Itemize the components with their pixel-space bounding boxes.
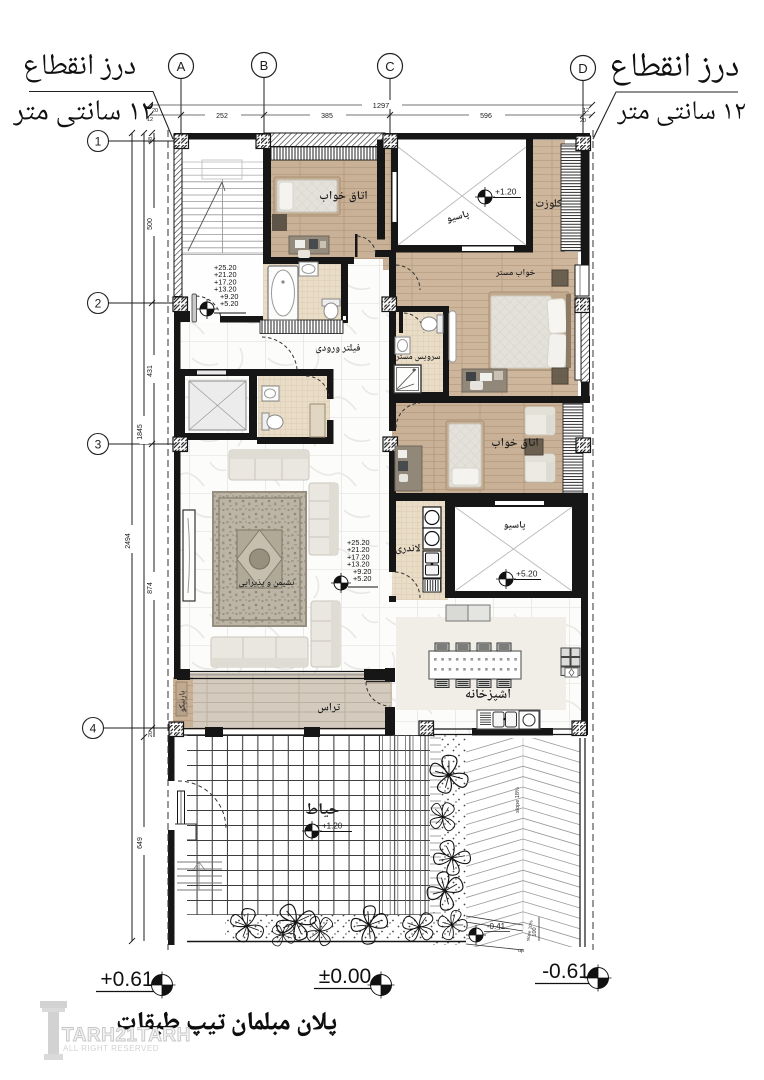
svg-text:100: 100: [532, 927, 538, 936]
svg-text:649: 649: [137, 837, 144, 849]
svg-text:C: C: [385, 59, 394, 74]
svg-text:874: 874: [147, 582, 154, 594]
svg-text:slope 18%: slope 18%: [515, 787, 521, 813]
svg-text:A: A: [177, 59, 186, 74]
svg-text:12: 12: [583, 108, 589, 114]
svg-text:20: 20: [152, 108, 158, 114]
svg-text:+5.20: +5.20: [220, 299, 238, 308]
svg-text:B: B: [260, 58, 269, 73]
svg-text:20: 20: [148, 731, 154, 737]
svg-text:-0.41: -0.41: [487, 922, 506, 931]
svg-text:2: 2: [95, 297, 102, 311]
svg-text:ALL RIGHT RESERVED: ALL RIGHT RESERVED: [63, 1044, 159, 1053]
svg-text:1845: 1845: [137, 424, 144, 440]
svg-text:500: 500: [147, 218, 154, 230]
svg-text:+1.20: +1.20: [322, 822, 343, 831]
svg-text:4: 4: [90, 722, 97, 736]
svg-text:1297: 1297: [373, 101, 390, 110]
svg-text:+0.61: +0.61: [100, 968, 153, 991]
svg-text:up: up: [518, 948, 524, 954]
svg-text:3: 3: [95, 438, 102, 452]
svg-text:+1.20: +1.20: [495, 187, 517, 197]
svg-text:+5.20: +5.20: [516, 569, 538, 579]
svg-text:385: 385: [321, 113, 333, 120]
svg-text:1: 1: [95, 135, 102, 149]
svg-text:596: 596: [480, 113, 492, 120]
svg-text:20: 20: [580, 118, 586, 124]
svg-text:252: 252: [216, 113, 228, 120]
svg-text:-0.61: -0.61: [542, 960, 590, 983]
svg-text:TARH21TARH: TARH21TARH: [62, 1025, 191, 1046]
svg-text:+5.20: +5.20: [353, 574, 371, 583]
svg-text:±0.00: ±0.00: [319, 965, 371, 988]
svg-text:431: 431: [147, 365, 154, 377]
svg-text:12: 12: [147, 117, 153, 123]
svg-text:2494: 2494: [125, 533, 132, 549]
svg-text:D: D: [578, 61, 587, 76]
